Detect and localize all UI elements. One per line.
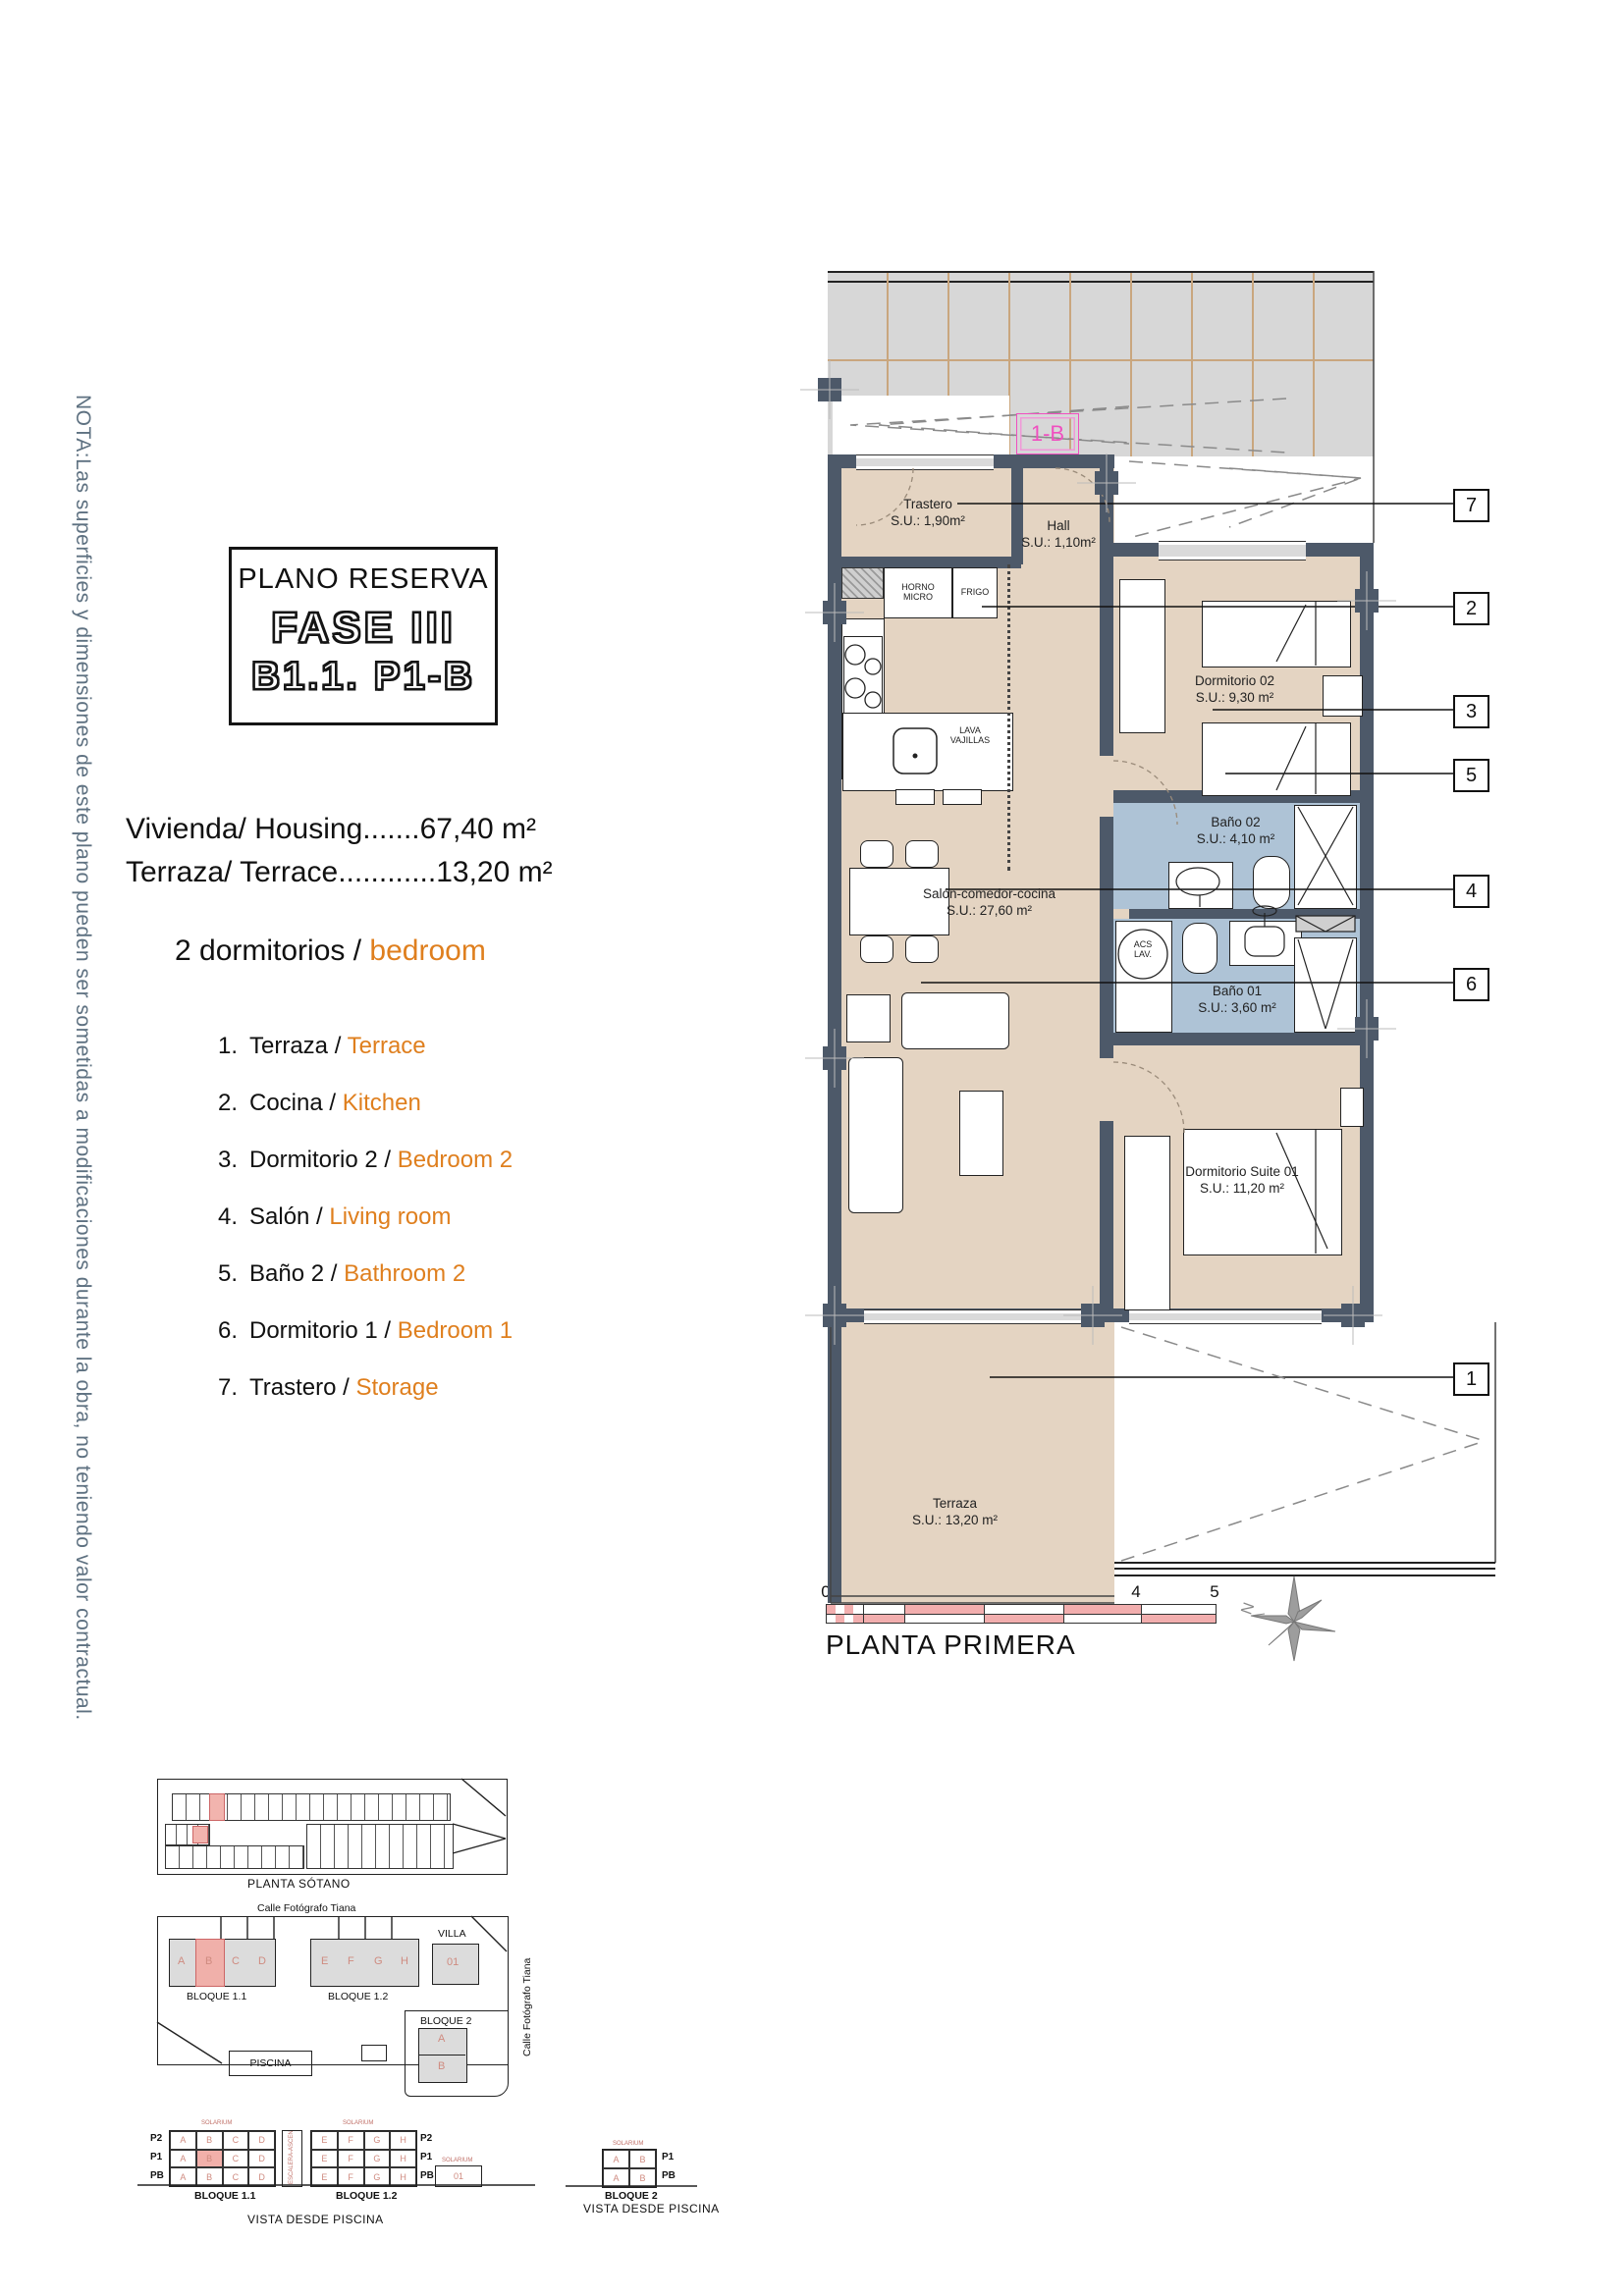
solarium-label-b2: SOLARIUM bbox=[613, 2141, 643, 2147]
shower-bath2 bbox=[1294, 805, 1357, 909]
island-stool bbox=[895, 789, 935, 805]
callout-2: 2 bbox=[1453, 592, 1489, 625]
room-area: S.U.: 11,20 m² bbox=[1200, 1181, 1284, 1196]
door-gap-suite bbox=[1100, 1058, 1113, 1121]
room-name: Trastero bbox=[903, 497, 952, 511]
unit-code-title: B1.1. P1-B bbox=[232, 655, 495, 699]
toilet-bath1 bbox=[1182, 923, 1217, 974]
bedrooms-en: bedroom bbox=[369, 934, 485, 967]
room-area: S.U.: 3,60 m² bbox=[1198, 1000, 1276, 1015]
window-trastero bbox=[856, 454, 994, 470]
elev-cell: E bbox=[311, 2131, 338, 2150]
legend-item-7: 7.Trastero / Storage bbox=[218, 1374, 439, 1402]
kitchen-open-boundary bbox=[1007, 564, 1010, 871]
villa01-unit: 01 bbox=[454, 2171, 463, 2181]
room-label-terraza: Terraza S.U.: 13,20 m² bbox=[889, 1496, 1021, 1529]
terrace-fill bbox=[835, 1320, 1114, 1603]
floor-plan-sheet: NOTA:Las superficies y dimensiones de es… bbox=[0, 0, 1623, 2296]
room-name: Baño 02 bbox=[1211, 815, 1260, 829]
elev-cell: A bbox=[170, 2150, 196, 2168]
wall-bath2-bath1 bbox=[1129, 909, 1374, 919]
scale-tick-5: 5 bbox=[1210, 1582, 1218, 1602]
garage-stall-highlight bbox=[209, 1793, 225, 1821]
elev-cell: D bbox=[248, 2131, 275, 2150]
north-label: N bbox=[1238, 1600, 1259, 1617]
room-label-trastero: Trastero S.U.: 1,90m² bbox=[854, 497, 1001, 530]
legend-en: Living room bbox=[329, 1203, 451, 1230]
nightstand-suite bbox=[1340, 1088, 1364, 1127]
dining-chair bbox=[905, 840, 939, 868]
legend-num: 7. bbox=[218, 1374, 249, 1402]
legend-en: Bedroom 2 bbox=[398, 1147, 513, 1173]
bloque2-unit-b: B bbox=[438, 2060, 445, 2072]
legend-num: 1. bbox=[218, 1033, 249, 1060]
room-name: Dormitorio 02 bbox=[1195, 673, 1274, 688]
elev-cell: G bbox=[364, 2131, 391, 2150]
bedrooms-line: 2 dormitorios / bedroom bbox=[175, 934, 486, 968]
street-right-label: Calle Fotógrafo Tiana bbox=[521, 1958, 533, 2056]
wall-bath1-suite bbox=[1113, 1033, 1374, 1045]
floor-caption: PLANTA PRIMERA bbox=[826, 1629, 1076, 1661]
acs-label-2: LAV. bbox=[1134, 949, 1152, 959]
elev-cell: E bbox=[311, 2167, 338, 2186]
elev-cell: D bbox=[248, 2167, 275, 2186]
bedrooms-sep: / bbox=[345, 934, 369, 967]
elevation-bloque12: E F G H E F G H E F G H bbox=[310, 2130, 417, 2187]
shaft-hatch bbox=[841, 567, 884, 599]
legend-en: Bedroom 1 bbox=[398, 1317, 513, 1344]
elev-bloque12-label: BLOQUE 1.2 bbox=[336, 2190, 397, 2202]
toilet-bath2 bbox=[1253, 856, 1290, 909]
unit-letter-a: A bbox=[178, 1955, 185, 1967]
row-label-pb-right: PB bbox=[420, 2170, 434, 2181]
elev-cell: G bbox=[364, 2150, 391, 2168]
island-stool bbox=[943, 789, 982, 805]
acs-closet bbox=[1115, 921, 1172, 1033]
acs-label-1: ACS bbox=[1134, 939, 1153, 949]
elevation-bloque11: A B C D A B C D A B C D bbox=[169, 2130, 276, 2187]
room-label-salon: Salón-comedor-cocina S.U.: 27,60 m² bbox=[918, 886, 1060, 920]
elev-cell-highlight-p1b: B bbox=[196, 2150, 223, 2168]
wall-left-exterior bbox=[828, 454, 841, 1603]
bed-dorm02-1 bbox=[1202, 601, 1351, 667]
legend-es: Cocina bbox=[249, 1090, 323, 1116]
legend-num: 5. bbox=[218, 1260, 249, 1288]
elevation-villa01: 01 bbox=[435, 2165, 482, 2187]
legend-es: Trastero bbox=[249, 1374, 336, 1401]
fridge-label: FRIGO bbox=[961, 588, 990, 598]
elev-cell: F bbox=[338, 2131, 364, 2150]
room-name: Dormitorio Suite 01 bbox=[1185, 1164, 1299, 1179]
shaft-label: ESCALERA-ASCENSOR bbox=[289, 2171, 295, 2184]
wall-right-exterior bbox=[1360, 543, 1374, 1320]
garage-stalls-row3 bbox=[165, 1845, 304, 1869]
garage-stall-highlight-2 bbox=[192, 1826, 208, 1843]
elev-cell: A bbox=[170, 2131, 196, 2150]
dishwasher-label-1: LAVA bbox=[959, 725, 981, 735]
room-name: Terraza bbox=[933, 1496, 977, 1511]
wardrobe-suite-closet bbox=[1294, 937, 1357, 1033]
plan-title: PLANO RESERVA bbox=[232, 563, 495, 596]
oven-microwave-cabinet: HORNO MICRO bbox=[884, 567, 952, 618]
scale-tick-4: 4 bbox=[1131, 1582, 1140, 1602]
street-top-label: Calle Fotógrafo Tiana bbox=[257, 1902, 355, 1914]
piscina-label: PISCINA bbox=[249, 2057, 291, 2069]
legend-item-5: 5.Baño 2 / Bathroom 2 bbox=[218, 1260, 465, 1288]
unit-letter-h: H bbox=[401, 1955, 408, 1967]
villa-unit: 01 bbox=[447, 1956, 459, 1968]
legend-item-4: 4.Salón / Living room bbox=[218, 1203, 451, 1231]
elev-cell: A bbox=[603, 2150, 629, 2168]
unit-tag: 1-B bbox=[1016, 413, 1079, 454]
legend-num: 3. bbox=[218, 1147, 249, 1174]
armchair bbox=[846, 994, 891, 1042]
row-label-p2: P2 bbox=[150, 2133, 162, 2144]
fridge-cabinet: FRIGO bbox=[952, 567, 998, 618]
legend-es: Dormitorio 2 bbox=[249, 1147, 378, 1173]
wardrobe-dorm02 bbox=[1119, 579, 1165, 733]
room-area: S.U.: 1,10m² bbox=[1021, 535, 1096, 550]
elev-cell: D bbox=[248, 2150, 275, 2168]
solarium-label-01: SOLARIUM bbox=[442, 2158, 472, 2163]
housing-area-line: Vivienda/ Housing.......67,40 m² bbox=[126, 813, 536, 846]
callout-5: 5 bbox=[1453, 759, 1489, 792]
legend-num: 4. bbox=[218, 1203, 249, 1231]
legend-item-3: 3.Dormitorio 2 / Bedroom 2 bbox=[218, 1147, 513, 1174]
unit-letter-g: G bbox=[374, 1955, 383, 1967]
elev-cell: A bbox=[170, 2167, 196, 2186]
elev-cell: B bbox=[629, 2150, 656, 2168]
elev-cell: B bbox=[196, 2131, 223, 2150]
elevation-shaft: ESCALERA-ASCENSOR bbox=[282, 2130, 302, 2187]
elev-cell: B bbox=[629, 2168, 656, 2187]
sink-bath1 bbox=[1229, 921, 1302, 966]
callout-6: 6 bbox=[1453, 968, 1489, 1001]
room-label-dorm02: Dormitorio 02 S.U.: 9,30 m² bbox=[1168, 673, 1301, 707]
sofa-left bbox=[848, 1057, 903, 1213]
room-name: Hall bbox=[1047, 518, 1069, 533]
unit-letter-e: E bbox=[321, 1955, 328, 1967]
nightstand-dorm02 bbox=[1323, 675, 1363, 717]
legend-num: 6. bbox=[218, 1317, 249, 1345]
piscina: PISCINA bbox=[229, 2051, 312, 2076]
acs-label: ACS LAV. bbox=[1117, 940, 1168, 960]
elev-cell: F bbox=[338, 2167, 364, 2186]
vista-caption-2: VISTA DESDE PISCINA bbox=[583, 2202, 720, 2216]
legend-en: Storage bbox=[355, 1374, 438, 1401]
legend-item-2: 2.Cocina / Kitchen bbox=[218, 1090, 421, 1117]
roof-slope-gap bbox=[833, 396, 1009, 454]
legend-es: Salón bbox=[249, 1203, 309, 1230]
row-label-p1-right: P1 bbox=[420, 2152, 432, 2163]
elev-cell: B bbox=[196, 2167, 223, 2186]
dishwasher-label: LAVA VAJILLAS bbox=[935, 726, 1005, 746]
unit-letter-d: D bbox=[258, 1955, 266, 1967]
room-area: S.U.: 1,90m² bbox=[891, 513, 965, 528]
elevation-bloque2: A B A B bbox=[602, 2149, 657, 2188]
row-label-pb-b2: PB bbox=[662, 2170, 676, 2181]
legend-item-6: 6.Dormitorio 1 / Bedroom 1 bbox=[218, 1317, 513, 1345]
room-label-hall: Hall S.U.: 1,10m² bbox=[1013, 518, 1104, 552]
kitchen-island bbox=[842, 713, 1013, 791]
villa-label: VILLA bbox=[438, 1928, 466, 1940]
unit-letter-c: C bbox=[232, 1955, 240, 1967]
dining-chair bbox=[860, 935, 893, 963]
row-label-p1: P1 bbox=[150, 2152, 162, 2163]
callout-4: 4 bbox=[1453, 875, 1489, 908]
bedrooms-es: 2 dormitorios bbox=[175, 934, 345, 967]
elev-bloque2-label: BLOQUE 2 bbox=[605, 2190, 658, 2202]
bloque2-unit-a: A bbox=[438, 2033, 445, 2045]
elev-cell: E bbox=[311, 2150, 338, 2168]
room-area: S.U.: 13,20 m² bbox=[912, 1513, 998, 1527]
terrace-area-line: Terraza/ Terrace............13,20 m² bbox=[126, 856, 553, 889]
legend-es: Terraza bbox=[249, 1033, 328, 1059]
elev-cell: G bbox=[364, 2167, 391, 2186]
elev-cell: H bbox=[390, 2131, 416, 2150]
room-area: S.U.: 27,60 m² bbox=[947, 903, 1032, 918]
dining-chair bbox=[905, 935, 939, 963]
door-gap-bath2 bbox=[1100, 756, 1113, 817]
room-label-suite: Dormitorio Suite 01 S.U.: 11,20 m² bbox=[1168, 1164, 1316, 1198]
dining-chair bbox=[860, 840, 893, 868]
bloque11-label: BLOQUE 1.1 bbox=[187, 1991, 246, 2002]
garage-stalls-row4 bbox=[306, 1824, 454, 1869]
legend-en: Bathroom 2 bbox=[344, 1260, 465, 1287]
window-suite bbox=[1129, 1309, 1322, 1324]
room-label-bano01: Baño 01 S.U.: 3,60 m² bbox=[1178, 984, 1296, 1017]
open-area bbox=[1114, 1322, 1495, 1575]
callout-1: 1 bbox=[1453, 1362, 1489, 1396]
wardrobe-suite bbox=[1124, 1136, 1170, 1310]
elev-cell: C bbox=[223, 2131, 249, 2150]
title-box: PLANO RESERVA FASE III B1.1. P1-B bbox=[229, 547, 498, 725]
micro-label: MICRO bbox=[885, 593, 951, 603]
solarium-label-b12: SOLARIUM bbox=[343, 2120, 373, 2126]
room-area: S.U.: 9,30 m² bbox=[1196, 690, 1274, 705]
callout-7: 7 bbox=[1453, 489, 1489, 522]
coffee-table bbox=[959, 1091, 1003, 1176]
sofa-top bbox=[901, 992, 1009, 1049]
phase-title: FASE III bbox=[232, 604, 495, 653]
room-area: S.U.: 4,10 m² bbox=[1197, 831, 1275, 846]
compass-rose bbox=[1251, 1576, 1335, 1661]
legend-en: Kitchen bbox=[343, 1090, 421, 1116]
elev-cell: F bbox=[338, 2150, 364, 2168]
room-label-bano02: Baño 02 S.U.: 4,10 m² bbox=[1174, 815, 1297, 848]
elev-cell: H bbox=[390, 2167, 416, 2186]
bed-dorm02-2 bbox=[1202, 722, 1351, 796]
elev-cell: H bbox=[390, 2150, 416, 2168]
elev-cell: C bbox=[223, 2150, 249, 2168]
legend-es: Dormitorio 1 bbox=[249, 1317, 378, 1344]
dishwasher-label-2: VAJILLAS bbox=[950, 735, 990, 745]
unit-letter-b: B bbox=[205, 1955, 212, 1967]
window-living-terrace bbox=[864, 1309, 1098, 1324]
site-small-structure bbox=[361, 2045, 387, 2061]
elev-bloque11-label: BLOQUE 1.1 bbox=[194, 2190, 255, 2202]
callout-3: 3 bbox=[1453, 695, 1489, 728]
room-name: Salón-comedor-cocina bbox=[923, 886, 1055, 901]
room-name: Baño 01 bbox=[1213, 984, 1262, 998]
legend-en: Terrace bbox=[348, 1033, 426, 1059]
bloque12-label: BLOQUE 1.2 bbox=[328, 1991, 388, 2002]
bloque2-divider bbox=[418, 2055, 465, 2056]
vista-caption-1: VISTA DESDE PISCINA bbox=[247, 2213, 384, 2226]
legend-es: Baño 2 bbox=[249, 1260, 324, 1287]
row-label-p2-right: P2 bbox=[420, 2133, 432, 2144]
unit-letter-f: F bbox=[348, 1955, 354, 1967]
wall-central bbox=[1100, 454, 1113, 1320]
row-label-p1-b2: P1 bbox=[662, 2152, 674, 2163]
disclaimer-note: NOTA:Las superficies y dimensiones de es… bbox=[71, 395, 94, 1941]
legend-num: 2. bbox=[218, 1090, 249, 1117]
sink-bath2 bbox=[1168, 862, 1233, 909]
window-dorm02 bbox=[1159, 541, 1306, 561]
garage-caption: PLANTA SÓTANO bbox=[247, 1877, 351, 1891]
scale-bar bbox=[826, 1604, 1217, 1624]
elev-cell: A bbox=[603, 2168, 629, 2187]
row-label-pb: PB bbox=[150, 2170, 164, 2181]
legend-item-1: 1.Terraza / Terrace bbox=[218, 1033, 426, 1060]
roof-slope-arrows-right bbox=[1129, 461, 1361, 538]
elev-cell: C bbox=[223, 2167, 249, 2186]
solarium-label-b11: SOLARIUM bbox=[201, 2120, 232, 2126]
